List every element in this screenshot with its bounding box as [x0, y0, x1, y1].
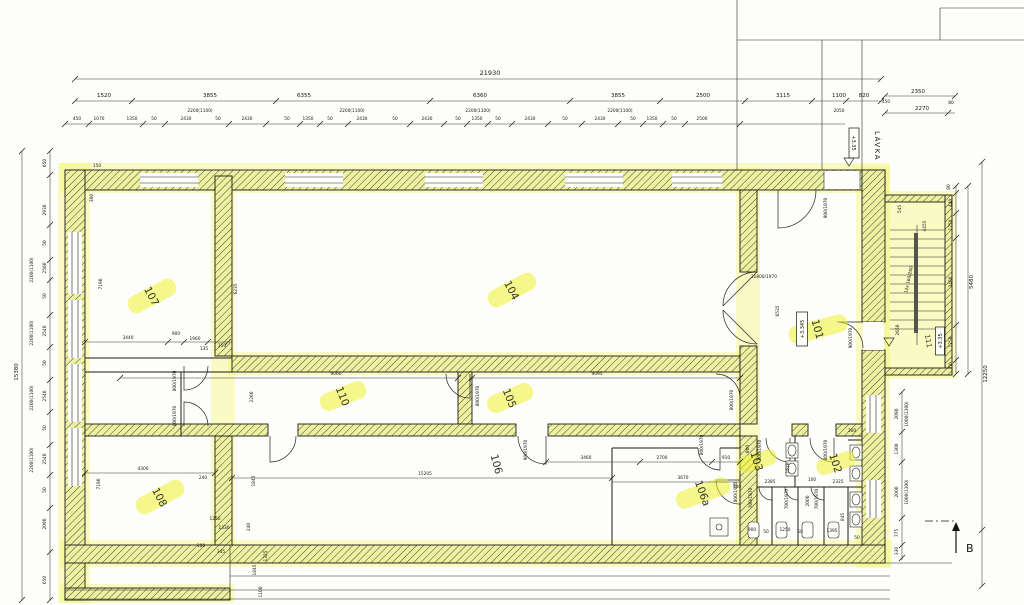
dim-label: 1520	[97, 93, 111, 99]
dim-label: 2090	[894, 408, 900, 419]
door-label: 700/1970	[748, 487, 754, 508]
dim-label: 240	[199, 475, 207, 481]
dim-label: 50	[42, 425, 48, 431]
dim-label: 1610	[785, 462, 791, 473]
door-label: 800/1970	[699, 434, 705, 455]
dim-label: 21930	[480, 69, 501, 77]
dim-label: 1100	[258, 586, 264, 597]
dim-label: 1350	[303, 116, 314, 122]
stair-handrail	[914, 233, 918, 333]
dim-label: 1350	[127, 116, 138, 122]
window	[140, 173, 198, 187]
dim-label: 7190	[96, 478, 102, 489]
dim-label: 50	[42, 293, 48, 299]
walls	[65, 170, 952, 600]
dim-label: 2650	[895, 324, 901, 335]
level-box-111: +3.35	[936, 327, 945, 355]
dim-label: 50	[284, 116, 290, 122]
door-arc	[184, 402, 208, 426]
sink	[850, 512, 862, 527]
dim-label: 2200(1100)	[187, 108, 213, 114]
door-label: 800/1970	[475, 385, 481, 406]
dim-label: 50	[630, 116, 636, 122]
dim-label: 545	[897, 205, 903, 213]
dim-label: 50	[671, 116, 677, 122]
dim-label: 3855	[203, 93, 217, 99]
dim-label: 2430	[422, 116, 433, 122]
floor-plan-scan: 12x 160/280 107 104 110 105 106 106a 108…	[0, 0, 1024, 605]
door-label: 800/1970	[823, 439, 829, 460]
dim-label: 12250	[983, 365, 989, 383]
door-label: 800/1970	[757, 439, 763, 460]
level-box-101: +3.345	[797, 312, 808, 346]
window	[425, 173, 483, 187]
dim-label: 2200(1100)	[29, 385, 35, 411]
dim-label: 2500	[696, 93, 710, 99]
door-arc	[518, 436, 546, 464]
bridge-door-opening	[824, 171, 860, 189]
svg-text:106: 106	[488, 453, 505, 476]
dim-label: 300	[89, 194, 95, 202]
dim-label: 2540	[42, 325, 48, 336]
window	[68, 232, 82, 294]
dim-label: 3115	[776, 93, 790, 99]
dim-label: 300	[848, 428, 856, 434]
dim-label: 450	[882, 99, 890, 105]
dim-label: 845	[840, 513, 846, 521]
dim-label: 1300	[894, 443, 900, 454]
dim-label: 50	[854, 535, 860, 541]
dim-label: 240	[246, 523, 252, 531]
dim-label: 50	[151, 116, 157, 122]
dim-label: 15205	[418, 471, 432, 477]
dim-label: 1250	[948, 336, 954, 347]
dim-label: 2325	[833, 479, 844, 485]
dim-label: 1070	[94, 116, 105, 122]
door-label: 900/1970	[848, 327, 854, 348]
dim-label: 910	[722, 455, 730, 461]
dim-label: 50	[42, 240, 48, 246]
dim-label: 2090	[42, 518, 48, 529]
door-label: 800/1970	[172, 405, 178, 426]
dim-label: 2050	[834, 108, 845, 114]
dim-label: 2560	[42, 262, 48, 273]
dim-label: 9060	[331, 371, 342, 377]
dim-label: 2000	[894, 486, 900, 497]
dim-label: 6235	[233, 283, 239, 294]
lavka-label: LÁVKA	[873, 131, 882, 161]
dim-label: 2930	[42, 204, 48, 215]
dim-label: 1325	[263, 550, 269, 561]
section-label: B	[966, 542, 974, 555]
dim-label: 2350	[911, 89, 925, 95]
dim-label: 450	[73, 116, 81, 122]
dim-label: 2430	[357, 116, 368, 122]
dim-label: 2260	[249, 391, 255, 402]
dim-label: 6535	[775, 305, 781, 316]
dim-label: 6360	[473, 93, 487, 99]
dim-label: 150	[218, 343, 226, 349]
dim-label: 1845	[252, 564, 258, 575]
dim-label: 2200(1100)	[29, 257, 35, 283]
door-label: 800/1970	[733, 481, 739, 502]
door-arc	[759, 487, 772, 500]
dim-label: 50	[797, 529, 803, 535]
dim-label: 330	[894, 547, 900, 555]
dim-label: 50	[763, 529, 769, 535]
dim-label: 900	[745, 445, 751, 453]
window	[68, 364, 82, 422]
dim-label: 50	[495, 116, 501, 122]
dim-chain-left: 15380 650 2930 50 2560 50 2540 50 2540 5…	[14, 148, 53, 603]
dim-label: 100	[197, 543, 205, 549]
window	[285, 173, 343, 187]
dim-label: 1395	[827, 528, 838, 534]
dim-label: 2200(1100)	[607, 108, 633, 114]
dim-label: 150	[93, 163, 101, 169]
dim-label: 650	[42, 159, 48, 167]
dim-label: 900	[172, 331, 180, 337]
dim-label: 50	[455, 116, 461, 122]
dim-label: 50	[327, 116, 333, 122]
svg-text:+3.35: +3.35	[938, 333, 944, 348]
room-label-108: 108	[132, 476, 187, 518]
dim-label: 1350	[472, 116, 483, 122]
door-label: 700/1970	[784, 488, 790, 509]
dim-label: 2200(1100)	[339, 108, 365, 114]
dim-label: 1250	[210, 516, 221, 522]
dim-label: 3855	[611, 93, 625, 99]
dim-label: 3440	[123, 335, 134, 341]
sink	[850, 466, 862, 481]
dim-label: 2700	[657, 455, 668, 461]
dim-label: 6355	[297, 93, 311, 99]
dim-label: 775	[894, 529, 900, 537]
dim-label: 2200(1100)	[465, 108, 491, 114]
door-label: 800/1970	[172, 370, 178, 391]
dim-label: 2430	[242, 116, 253, 122]
window	[672, 173, 722, 187]
svg-text:+3.345: +3.345	[800, 320, 806, 339]
room-label-104: 104	[484, 269, 539, 311]
dim-label: 1330	[219, 525, 230, 531]
dim-label: 1350	[647, 116, 658, 122]
dim-label: 100	[808, 477, 816, 483]
dim-label: 2200(1100)	[29, 320, 35, 346]
dim-label: 50	[948, 362, 954, 368]
dim-label: 345	[217, 549, 225, 555]
dim-label: 2500	[697, 116, 708, 122]
room-label-110: 110	[317, 378, 369, 415]
room-label-101: 101	[786, 312, 849, 347]
dim-label: 50	[215, 116, 221, 122]
door-label: 800/1970	[729, 389, 735, 410]
window	[866, 395, 881, 433]
dim-label: 2540	[42, 453, 48, 464]
dim-label: 5480	[969, 275, 975, 289]
dim-label: 50	[42, 487, 48, 493]
dim-label: 4455	[922, 220, 928, 231]
sink	[850, 492, 862, 507]
dim-label: 3480	[948, 276, 954, 287]
dim-label: 3460	[581, 455, 592, 461]
window	[68, 428, 82, 486]
dim-label: 1960	[190, 336, 201, 342]
dim-label: 440	[948, 199, 954, 207]
dim-label: 1100	[832, 93, 846, 99]
dim-label: 2430	[595, 116, 606, 122]
dim-label: 1000(1300)	[904, 479, 910, 505]
section-mark-b: B	[925, 521, 974, 555]
window	[565, 173, 623, 187]
dim-label: 900	[748, 527, 756, 533]
door-label: 700/1970	[814, 488, 820, 509]
dim-label: 2200(1100)	[29, 447, 35, 473]
dim-label: 2430	[525, 116, 536, 122]
room-label-106: 106	[488, 453, 505, 476]
dim-label: 2540	[42, 390, 48, 401]
floor-drain	[710, 518, 728, 536]
dim-label: 2430	[181, 116, 192, 122]
window	[68, 300, 82, 358]
door-arc	[270, 436, 296, 462]
exit-door-opening	[863, 322, 884, 350]
dim-label: 80	[948, 100, 954, 106]
dim-label: 50	[562, 116, 568, 122]
dim-chain-top: 21930 1520 3855 6355 6360 3855 2500 3115…	[62, 69, 958, 127]
door-arc	[778, 190, 816, 228]
dim-label: 1250	[780, 527, 791, 533]
dim-label: 1845	[251, 475, 257, 486]
dim-label: 135	[200, 346, 208, 352]
door-label: 2x800/1970	[751, 274, 777, 280]
dim-label: 15380	[14, 363, 20, 381]
dim-label: 2000	[805, 495, 811, 506]
section-arrow-icon	[952, 522, 960, 531]
sink	[786, 443, 798, 458]
svg-text:+3.35: +3.35	[850, 135, 856, 150]
window	[866, 480, 881, 518]
floor-plan-drawing: 12x 160/280 107 104 110 105 106 106a 108…	[0, 0, 1024, 605]
dim-label: 4300	[138, 466, 149, 472]
dim-label: 820	[859, 93, 870, 99]
dim-label: 2385	[765, 479, 776, 485]
dim-label: 9095	[592, 371, 603, 377]
room-label-107: 107	[124, 275, 179, 317]
door-label: 900/1970	[823, 197, 829, 218]
dim-label: 50	[42, 360, 48, 366]
level-box-lavka: +3.35	[849, 128, 859, 158]
highlighter-marks	[58, 163, 956, 603]
dim-label: 2270	[915, 106, 929, 112]
door-label: 900/1970	[523, 439, 529, 460]
room-label-105: 105	[484, 380, 536, 417]
dim-label: 650	[42, 576, 48, 584]
dim-label: 3670	[678, 475, 689, 481]
dim-label: 50	[392, 116, 398, 122]
dim-label: 7190	[98, 278, 104, 289]
dim-label: 1000(1300)	[904, 401, 910, 427]
dim-label: 80	[946, 184, 952, 190]
dim-label: 1250	[948, 219, 954, 230]
